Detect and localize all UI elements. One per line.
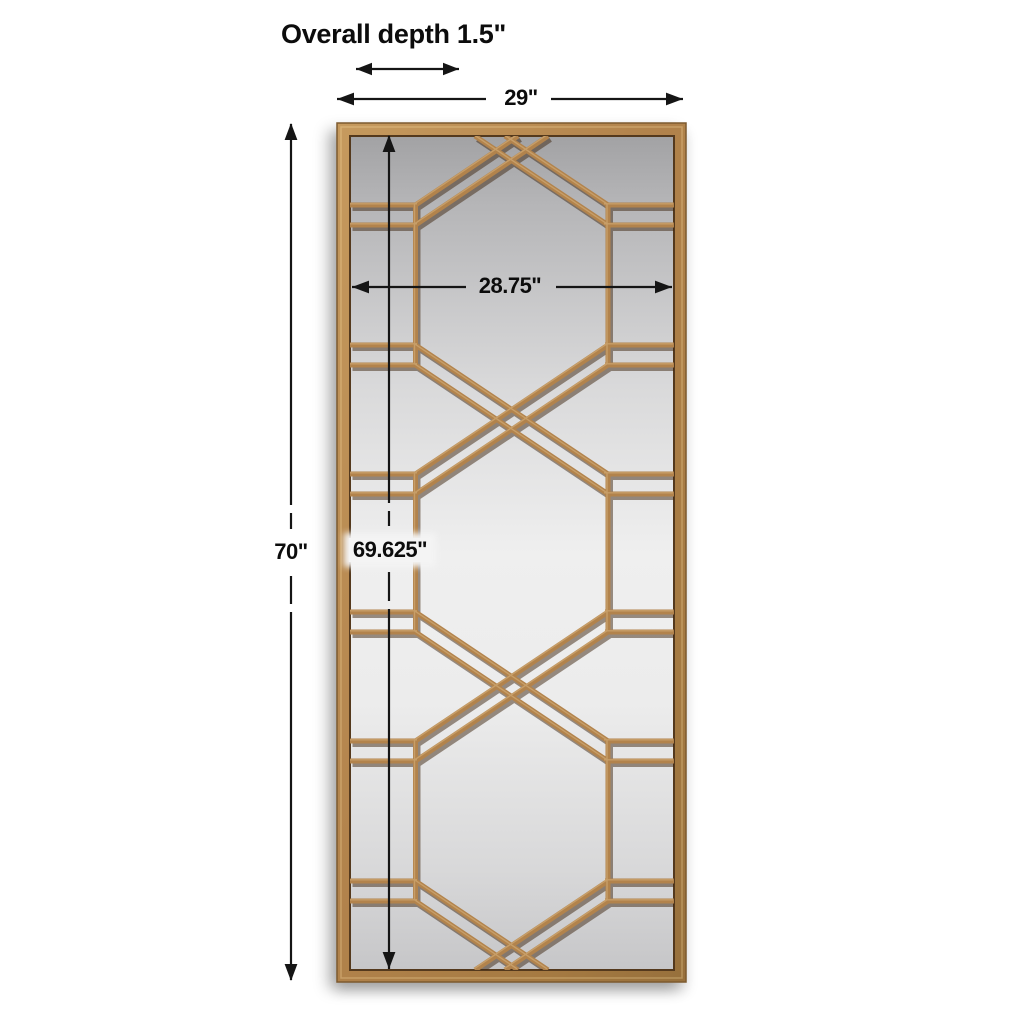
inner-width-label: 28.75" (479, 275, 541, 297)
mirror-diagram-svg (0, 0, 1024, 1024)
inner-height-label: 69.625" (349, 538, 431, 562)
overall-depth-label: Overall depth 1.5" (281, 21, 506, 48)
outer-height-label: 70" (274, 541, 307, 563)
product-dimension-diagram: Overall depth 1.5" 29" 28.75" 70" 69.625… (0, 0, 1024, 1024)
outer-width-label: 29" (504, 87, 537, 109)
